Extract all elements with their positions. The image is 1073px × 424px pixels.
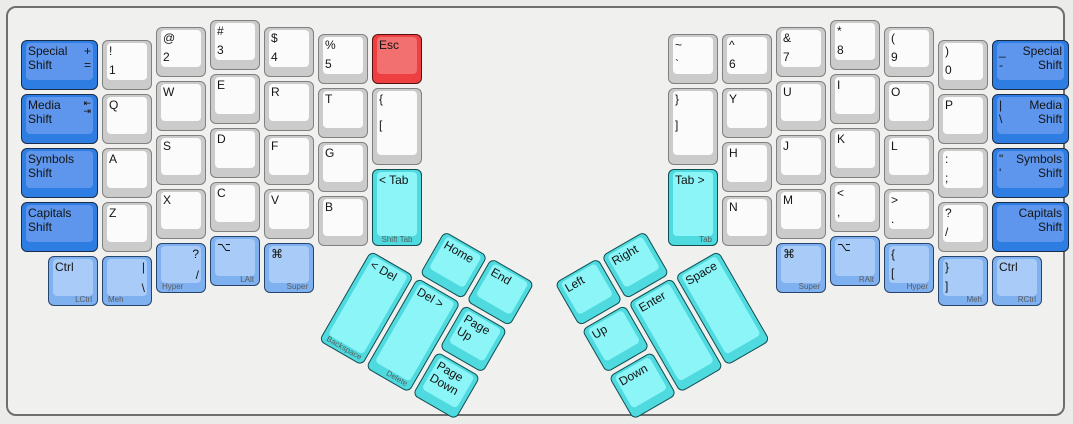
key-tab-right-legend-fr: Tab [699,235,712,244]
key-q-legend-tl: Q [109,99,118,113]
key-lparen-9[interactable]: (9 [882,25,936,79]
key-shift-tab-left-legend-tl: < Tab [379,174,408,188]
key-super-left-legend-fr: Super [287,282,308,291]
key-caret-6[interactable]: ^6 [720,32,774,86]
key-special-shift-left[interactable]: Special Shift+ = [19,38,100,92]
key-lbrace-lbracket-legend-tl: { [379,93,383,107]
key-s[interactable]: S [154,133,208,187]
key-m-legend-tl: M [783,194,793,208]
key-x-legend-tl: X [163,194,171,208]
key-o[interactable]: O [882,79,936,133]
key-lctrl-legend-fr: LCtrl [75,295,92,304]
key-capitals-shift-left[interactable]: Capitals Shift [19,200,100,254]
key-b-legend-tl: B [325,201,333,215]
key-lparen-9-legend-tl: ( [891,32,895,46]
key-colon-semicolon-legend-bl: ; [945,172,948,186]
key-j-legend-tl: J [783,140,789,154]
key-dollar-4[interactable]: $4 [262,25,316,79]
key-tab-right-legend-tl: Tab > [675,174,705,188]
key-capitals-shift-right-legend-tr: Capitals Shift [1019,207,1062,234]
key-dollar-4-legend-tl: $ [271,32,278,46]
key-exclamation-1-legend-bl: 1 [109,64,116,78]
key-less-comma-legend-bl: , [837,206,840,220]
key-i[interactable]: I [828,72,882,126]
key-rparen-0-legend-bl: 0 [945,64,952,78]
key-lbrace-lbracket-legend-ml: [ [379,119,382,133]
key-colon-semicolon[interactable]: :; [936,146,990,200]
key-lalt-legend-fr: LAlt [240,275,254,284]
key-super-right-legend-tl: ⌘ [783,248,795,262]
key-less-comma-legend-tl: < [837,187,844,201]
key-r[interactable]: R [262,79,316,133]
key-special-shift-left-legend-tl: Special Shift [28,45,67,72]
key-hash-3-legend-bl: 3 [217,44,224,58]
key-symbols-shift-right-legend-tr: Symbols Shift [1016,153,1062,180]
key-meh-left-legend-br: \ [142,282,145,296]
key-o-legend-tl: O [891,86,900,100]
key-f[interactable]: F [262,133,316,187]
key-super-left-legend-tl: ⌘ [271,248,283,262]
key-w-legend-tl: W [163,86,174,100]
keyboard-case: HomeEnd< DelBackspaceDel >DeletePage UpP… [6,6,1065,416]
key-symbols-shift-left[interactable]: Symbols Shift [19,146,100,200]
key-at-2[interactable]: @2 [154,25,208,79]
key-super-left[interactable]: ⌘Super [262,241,316,295]
key-shift-tab-left-legend-fc: Shift Tab [373,235,421,244]
key-v[interactable]: V [262,187,316,241]
key-percent-5-legend-tl: % [325,39,336,53]
key-media-shift-left[interactable]: Media Shift⇤ ⇥ [19,92,100,146]
key-rbrace-rbracket-legend-ml: ] [675,119,678,133]
key-esc-legend-tl: Esc [379,39,399,53]
key-rbrace-rbracket-legend-tl: } [675,93,679,107]
key-hyper-right-legend-bl: [ [891,267,894,281]
key-hyper-left-legend-br: / [196,269,199,283]
key-rctrl[interactable]: CtrlRCtrl [990,254,1044,308]
key-exclamation-1-legend-tl: ! [109,45,112,59]
key-l[interactable]: L [882,133,936,187]
key-rparen-0-legend-tl: ) [945,45,949,59]
key-z[interactable]: Z [100,200,154,254]
key-rparen-0[interactable]: )0 [936,38,990,92]
key-question-slash[interactable]: ?/ [936,200,990,254]
key-shift-tab-left[interactable]: < TabShift Tab [370,167,424,248]
key-t-legend-tl: T [325,93,332,107]
key-media-shift-left-legend-tl: Media Shift [28,99,61,126]
key-hyper-right-legend-tl: { [891,248,895,262]
key-capitals-shift-right[interactable]: Capitals Shift [990,200,1071,254]
key-ralt[interactable]: ⌥RAlt [828,234,882,288]
key-hyper-right-legend-fr: Hyper [907,282,928,291]
key-c-legend-tl: C [217,187,226,201]
key-tilde-grave-legend-tl: ~ [675,39,682,53]
key-k-legend-tl: K [837,133,845,147]
key-i-surface [835,77,875,114]
key-lalt-legend-tl: ⌥ [217,241,231,255]
key-hyper-left-legend-tr: ? [192,248,199,262]
key-w[interactable]: W [154,79,208,133]
key-question-slash-legend-tl: ? [945,207,952,221]
key-meh-left-legend-fl: Meh [108,295,124,304]
key-rctrl-legend-fr: RCtrl [1018,295,1036,304]
key-special-shift-right-legend-tr: Special Shift [1023,45,1062,72]
key-esc[interactable]: Esc [370,32,424,86]
key-j[interactable]: J [774,133,828,187]
key-z-legend-tl: Z [109,207,116,221]
key-special-shift-left-legend-tr: + = [84,45,91,72]
key-at-2-legend-tl: @ [163,32,175,46]
key-super-right-legend-fr: Super [799,282,820,291]
key-special-shift-right-legend-tl: _ - [999,45,1006,72]
key-s-legend-tl: S [163,140,171,154]
key-b[interactable]: B [316,194,370,248]
key-a-legend-tl: A [109,153,117,167]
key-meh-right-legend-fr: Meh [966,295,982,304]
key-at-2-legend-bl: 2 [163,51,170,65]
key-v-legend-tl: V [271,194,279,208]
key-x[interactable]: X [154,187,208,241]
key-less-comma[interactable]: <, [828,180,882,234]
key-h[interactable]: H [720,140,774,194]
key-asterisk-8-legend-tl: * [837,25,842,39]
key-caret-6-legend-bl: 6 [729,58,736,72]
key-hash-3-legend-tl: # [217,25,224,39]
keyboard-layout-stage: HomeEnd< DelBackspaceDel >DeletePage UpP… [0,0,1073,424]
key-u-legend-tl: U [783,86,792,100]
key-n-legend-tl: N [729,201,738,215]
key-f-legend-tl: F [271,140,278,154]
key-media-shift-right-legend-tl: | \ [999,99,1002,126]
key-ralt-legend-fr: RAlt [859,275,874,284]
key-capitals-shift-left-legend-tl: Capitals Shift [28,207,71,234]
key-ampersand-7[interactable]: &7 [774,25,828,79]
key-symbols-shift-right-legend-tl: " ' [999,153,1003,180]
key-greater-period-legend-tl: > [891,194,898,208]
key-l-legend-tl: L [891,140,898,154]
key-h-legend-tl: H [729,147,738,161]
key-ampersand-7-legend-tl: & [783,32,791,46]
key-rctrl-legend-tl: Ctrl [999,261,1018,275]
key-media-shift-right[interactable]: | \Media Shift [990,92,1071,146]
key-super-right[interactable]: ⌘Super [774,241,828,295]
key-y[interactable]: Y [720,86,774,140]
key-colon-semicolon-legend-tl: : [945,153,948,167]
key-g[interactable]: G [316,140,370,194]
key-percent-5[interactable]: %5 [316,32,370,86]
key-i-legend-tl: I [837,79,840,93]
key-exclamation-1[interactable]: !1 [100,38,154,92]
key-colon-semicolon-surface [943,151,983,188]
key-media-shift-right-legend-tr: Media Shift [1029,99,1062,126]
key-asterisk-8-legend-bl: 8 [837,44,844,58]
key-tilde-grave-legend-bl: ` [675,58,679,72]
key-ralt-legend-tl: ⌥ [837,241,851,255]
key-n[interactable]: N [720,194,774,248]
key-a[interactable]: A [100,146,154,200]
key-caret-6-legend-tl: ^ [729,39,735,53]
key-hyper-left[interactable]: ?/Hyper [154,241,208,295]
key-symbols-shift-left-legend-tl: Symbols Shift [28,153,74,180]
key-hyper-left-legend-fl: Hyper [162,282,183,291]
key-media-shift-left-media-tab-icon: ⇤ ⇥ [83,99,91,115]
key-r-legend-tl: R [271,86,280,100]
key-m[interactable]: M [774,187,828,241]
key-tilde-grave[interactable]: ~` [666,32,720,86]
key-hyper-right[interactable]: {[Hyper [882,241,936,295]
key-rbrace-rbracket[interactable]: }] [666,86,720,167]
key-y-legend-tl: Y [729,93,737,107]
key-meh-right-legend-bl: ] [945,280,948,294]
key-meh-right[interactable]: }]Meh [936,254,990,308]
key-question-slash-legend-bl: / [945,226,948,240]
key-ampersand-7-legend-bl: 7 [783,51,790,65]
key-lctrl-legend-tl: Ctrl [55,261,74,275]
key-meh-left[interactable]: |\Meh [100,254,154,308]
key-greater-period[interactable]: >. [882,187,936,241]
key-greater-period-legend-bl: . [891,213,894,227]
key-e[interactable]: E [208,72,262,126]
key-k[interactable]: K [828,126,882,180]
key-q[interactable]: Q [100,92,154,146]
key-d-legend-tl: D [217,133,226,147]
key-t[interactable]: T [316,86,370,140]
key-percent-5-legend-bl: 5 [325,58,332,72]
key-lalt[interactable]: ⌥LAlt [208,234,262,288]
key-meh-left-legend-tr: | [142,261,145,275]
key-lctrl[interactable]: CtrlLCtrl [46,254,100,308]
key-special-shift-right[interactable]: _ -Special Shift [990,38,1071,92]
key-u[interactable]: U [774,79,828,133]
key-asterisk-8[interactable]: *8 [828,18,882,72]
key-hash-3[interactable]: #3 [208,18,262,72]
key-d[interactable]: D [208,126,262,180]
key-p[interactable]: P [936,92,990,146]
key-p-legend-tl: P [945,99,953,113]
key-meh-right-legend-tl: } [945,261,949,275]
key-lparen-9-legend-bl: 9 [891,51,898,65]
key-e-legend-tl: E [217,79,225,93]
key-c[interactable]: C [208,180,262,234]
key-lbrace-lbracket[interactable]: {[ [370,86,424,167]
key-tab-right[interactable]: Tab >Tab [666,167,720,248]
key-g-legend-tl: G [325,147,334,161]
key-symbols-shift-right[interactable]: " 'Symbols Shift [990,146,1071,200]
key-dollar-4-legend-bl: 4 [271,51,278,65]
